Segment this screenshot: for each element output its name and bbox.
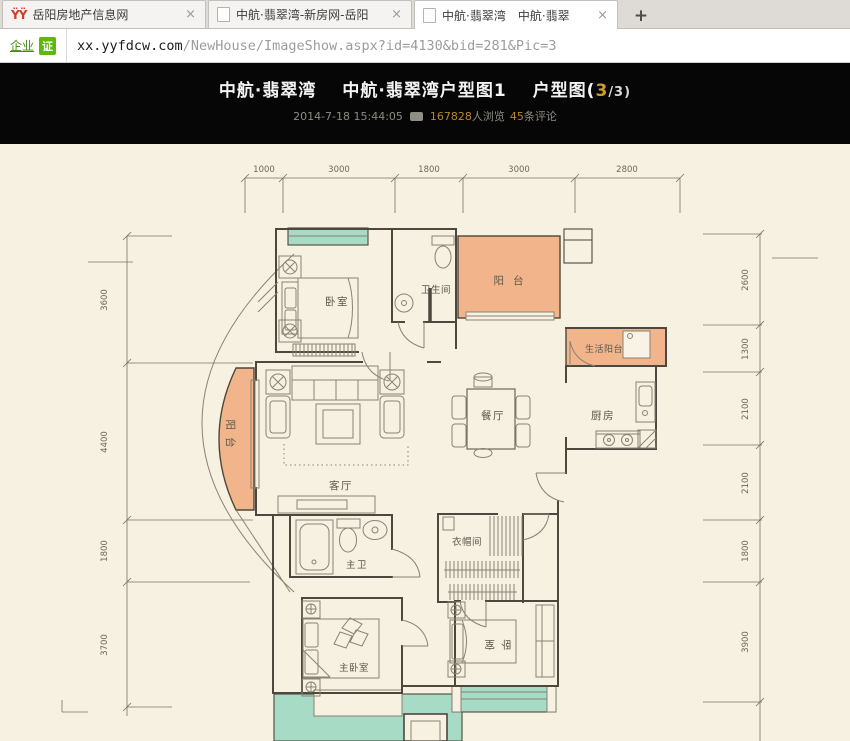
comments-label[interactable]: 条评论 (524, 110, 557, 123)
publish-date: 2014-7-18 15:44:05 (293, 110, 403, 123)
floorplan-image[interactable]: 1000 3000 1800 3000 2800 3600 4400 1800 … (0, 144, 850, 741)
dim-top-3: 1800 (418, 165, 440, 175)
furniture-master-bedroom (302, 601, 379, 696)
new-tab-button[interactable]: + (626, 4, 656, 28)
page-header: 中航·翡翠湾中航·翡翠湾户型图1户型图(3/3) 2014-7-18 15:44… (0, 63, 850, 144)
dim-left-1: 3600 (100, 289, 110, 311)
url-path: /NewHouse/ImageShow.aspx?id=4130&bid=281… (183, 38, 557, 54)
site-cert-badge[interactable]: 企业 证 (0, 29, 67, 62)
label-dining: 餐厅 (481, 409, 505, 422)
site-favicon-icon: ŸŸ (11, 8, 26, 22)
label-closet: 衣帽间 (452, 536, 482, 548)
project-name: 中航·翡翠湾 (219, 81, 316, 101)
dim-right-3: 2100 (741, 398, 751, 420)
browser-tab-bar: ŸŸ 岳阳房地产信息网 × 中航·翡翠湾-新房网-岳阳 × 中航·翡翠湾 中航·… (0, 0, 850, 29)
label-master-bedroom: 主卧室 (339, 662, 369, 674)
furniture-bathroom (395, 236, 454, 312)
furniture-living (258, 282, 408, 513)
dim-top-1: 1000 (253, 165, 275, 175)
url-host: xx.yyfdcw.com (77, 38, 183, 54)
label-laundry-balcony: 生活阳台 (585, 343, 623, 355)
label-balcony-top: 阳台 (494, 274, 533, 287)
dimension-chain-top: 1000 3000 1800 3000 2800 (241, 165, 684, 213)
page-title: 中航·翡翠湾中航·翡翠湾户型图1户型图(3/3) (0, 63, 850, 101)
page-icon (423, 8, 436, 23)
label-bedroom-top: 卧室 (325, 295, 349, 308)
dimension-chain-right: 2600 1300 2100 2100 1800 3900 (703, 230, 764, 741)
dim-right-4: 2100 (741, 472, 751, 494)
browser-window: ŸŸ 岳阳房地产信息网 × 中航·翡翠湾-新房网-岳阳 × 中航·翡翠湾 中航·… (0, 0, 850, 741)
dim-right-5: 1800 (741, 540, 751, 562)
gallery-page-current: 3 (595, 81, 608, 101)
tab-feicuiwan-image-active[interactable]: 中航·翡翠湾 中航·翡翠 × (414, 0, 618, 29)
views-count: 167828 (430, 110, 472, 123)
tab-title: 中航·翡翠湾 中航·翡翠 (442, 7, 590, 24)
furniture-closet (443, 516, 522, 600)
comment-icon (410, 112, 423, 121)
tab-title: 岳阳房地产信息网 (32, 6, 178, 23)
page-meta: 2014-7-18 15:44:05 167828人浏览 45条评论 (0, 108, 850, 124)
image-name: 中航·翡翠湾户型图1 (342, 81, 506, 101)
site-outline-marks (62, 258, 818, 712)
views-label: 人浏览 (472, 110, 505, 123)
label-balcony-left: 阳台 (224, 420, 237, 455)
dim-left-2: 4400 (100, 431, 110, 453)
close-icon[interactable]: × (596, 9, 609, 22)
dim-right-2: 1300 (741, 338, 751, 360)
close-icon[interactable]: × (184, 8, 197, 21)
address-bar[interactable]: 企业 证 xx.yyfdcw.com/NewHouse/ImageShow.as… (0, 29, 850, 63)
balcony-left-zone (202, 254, 294, 592)
tab-feicuiwan-newhouse[interactable]: 中航·翡翠湾-新房网-岳阳 × (208, 0, 412, 28)
gallery-page-total: /3) (608, 85, 631, 100)
label-bathroom: 卫生间 (421, 284, 451, 296)
close-icon[interactable]: × (390, 8, 403, 21)
url-field[interactable]: xx.yyfdcw.com/NewHouse/ImageShow.aspx?id… (67, 38, 557, 54)
tab-title: 中航·翡翠湾-新房网-岳阳 (236, 6, 384, 23)
gallery-label: 户型图( (533, 81, 596, 101)
dim-right-6: 3900 (741, 631, 751, 653)
dim-top-5: 2800 (616, 165, 638, 175)
dim-left-3: 1800 (100, 540, 110, 562)
dim-top-4: 3000 (508, 165, 530, 175)
dim-top-2: 3000 (328, 165, 350, 175)
comments-count[interactable]: 45 (510, 110, 524, 123)
label-living: 客厅 (329, 479, 353, 492)
label-master-bath: 主卫 (346, 559, 368, 571)
label-bedroom-bottom: 卧室 (479, 638, 512, 651)
cert-verified-icon: 证 (39, 37, 56, 55)
label-kitchen: 厨房 (591, 409, 615, 422)
dim-left-4: 3700 (100, 634, 110, 656)
dim-right-1: 2600 (741, 269, 751, 291)
cert-enterprise-link[interactable]: 企业 (10, 37, 34, 54)
page-icon (217, 7, 230, 22)
tab-yueyang-home[interactable]: ŸŸ 岳阳房地产信息网 × (2, 0, 206, 28)
furniture-master-bath (296, 519, 387, 574)
